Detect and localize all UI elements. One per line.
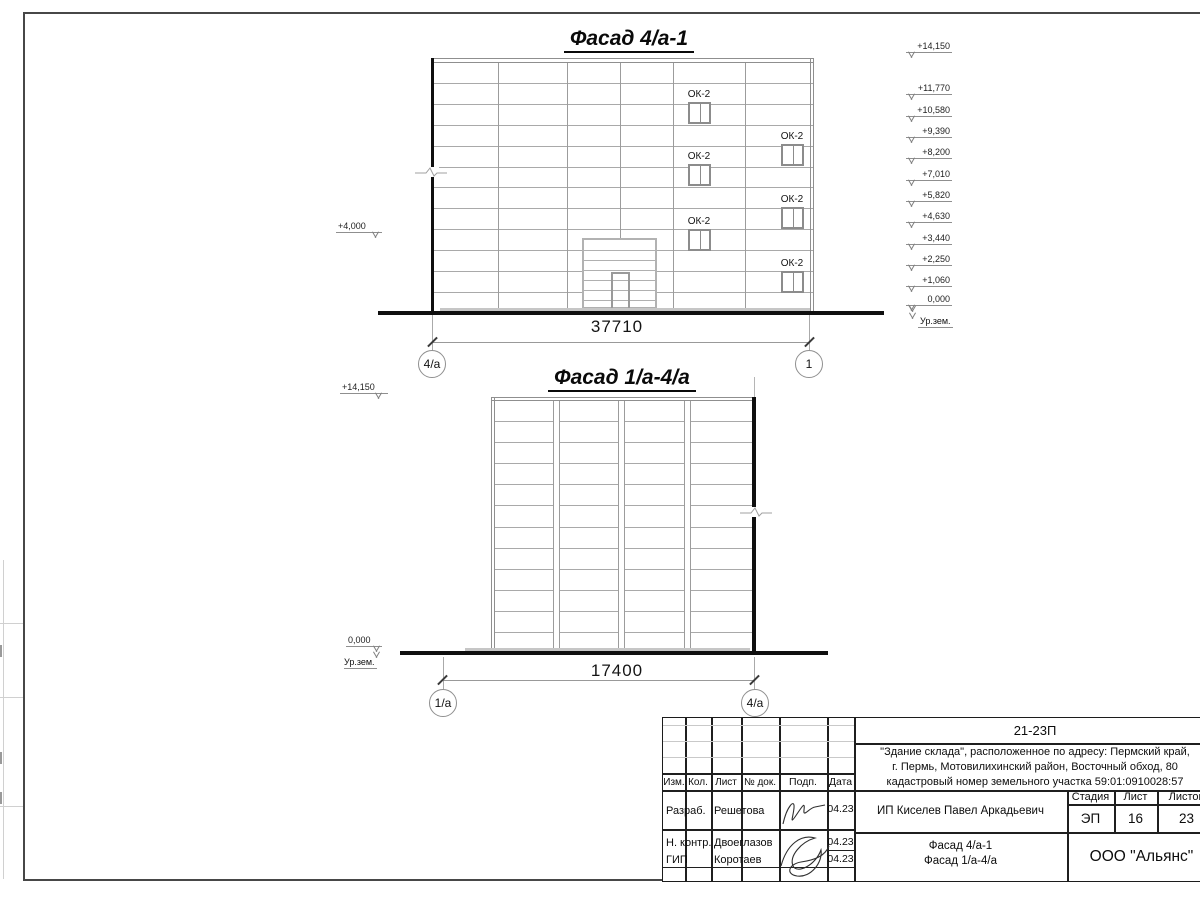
- signature-icon: [771, 826, 835, 880]
- elevation-mark-icon: [907, 137, 915, 144]
- elevation-mark: 0,000: [346, 635, 382, 647]
- elevation-mark-icon: [908, 313, 916, 320]
- facade1-dimension-text: 37710: [537, 317, 697, 337]
- drawing-title: Фасад 4/а-1 Фасад 1/а-4/а: [854, 839, 1067, 869]
- facade2-title: Фасад 1/а-4/а: [482, 366, 762, 390]
- facade2-dimension-text: 17400: [537, 661, 697, 681]
- stage-value: ЭП: [1067, 804, 1114, 832]
- title-block: Изм. Кол. Лист № док. Подп. Дата Разраб.…: [662, 717, 1200, 882]
- elevation-mark-icon: [907, 52, 915, 59]
- col-doc: № док.: [741, 774, 779, 790]
- elevation-mark-icon: [907, 180, 915, 187]
- row-role: Разраб.: [666, 805, 706, 817]
- sheets-label: Листов: [1157, 790, 1200, 804]
- gate-door: [611, 272, 630, 310]
- frame-top-line: [23, 12, 1200, 14]
- window-label: ОК-2: [679, 216, 719, 227]
- break-mark-icon: [415, 167, 447, 177]
- window-label: ОК-2: [772, 194, 812, 205]
- elevation-mark-icon: [907, 222, 915, 229]
- project-code: 21-23П: [854, 718, 1200, 743]
- company-name: ООО "Альянс": [1067, 832, 1200, 881]
- col-izm: Изм.: [663, 774, 685, 790]
- facade1-axis-left-bubble: 4/а: [418, 350, 446, 378]
- facade2-axis-right-bubble: 4/а: [741, 689, 769, 717]
- sheets-total: 23: [1157, 804, 1200, 832]
- break-mark-icon: [740, 507, 772, 517]
- sheet-number: 16: [1114, 804, 1157, 832]
- frame-left-line: [23, 12, 25, 881]
- facade2-ground-line: [400, 651, 828, 655]
- elevation-mark-icon: [907, 158, 915, 165]
- window-label: ОК-2: [679, 151, 719, 162]
- window-label: ОК-2: [772, 258, 812, 269]
- elevation-mark-icon: [907, 201, 915, 208]
- drawing-sheet: Фасад 4/а-1: [0, 0, 1200, 900]
- row-role: Н. контр.: [666, 837, 711, 849]
- window-ok2: [781, 144, 804, 166]
- gate: [582, 238, 657, 313]
- elevation-mark-icon: [371, 232, 379, 239]
- col-podp: Подп.: [779, 774, 827, 790]
- elevation-mark-icon: [907, 244, 915, 251]
- row-name: Коротаев: [714, 854, 762, 866]
- facade2-corner-line: [752, 397, 756, 653]
- window-label: ОК-2: [679, 89, 719, 100]
- elevation-mark-icon: [907, 265, 915, 272]
- facade1-axis-right-bubble: 1: [795, 350, 823, 378]
- elevation-mark-icon: [907, 116, 915, 123]
- row-name: Решетова: [714, 805, 764, 817]
- facade1-title: Фасад 4/а-1: [489, 27, 769, 51]
- col-kol: Кол.: [685, 774, 711, 790]
- facade1-corner-line: [431, 58, 434, 313]
- elevation-mark: +4,000: [336, 221, 382, 233]
- col-list: Лист: [711, 774, 741, 790]
- window-ok2: [688, 164, 711, 186]
- elevation-mark-icon: [907, 286, 915, 293]
- col-data: Дата: [827, 774, 854, 790]
- window-ok2: [781, 271, 804, 293]
- facade1-drawing: ОК-2 ОК-2 ОК-2 ОК-2 ОК-2 ОК-2: [433, 58, 813, 313]
- sheet-label: Лист: [1114, 790, 1157, 804]
- window-ok2: [688, 229, 711, 251]
- row-name: Двоеглазов: [714, 837, 772, 849]
- window-label: ОК-2: [772, 131, 812, 142]
- elevation-mark-icon: [907, 94, 915, 101]
- window-ok2: [688, 102, 711, 124]
- stage-label: Стадия: [1067, 790, 1114, 804]
- object-description: "Здание склада", расположенное по адресу…: [854, 745, 1200, 790]
- row-role: ГИП: [666, 854, 688, 866]
- facade2-drawing: [491, 397, 756, 653]
- elevation-mark: +14,150: [340, 382, 388, 394]
- elevation-mark-icon: [374, 393, 382, 400]
- client-name: ИП Киселев Павел Аркадьевич: [854, 790, 1067, 832]
- window-ok2: [781, 207, 804, 229]
- facade2-axis-left-bubble: 1/а: [429, 689, 457, 717]
